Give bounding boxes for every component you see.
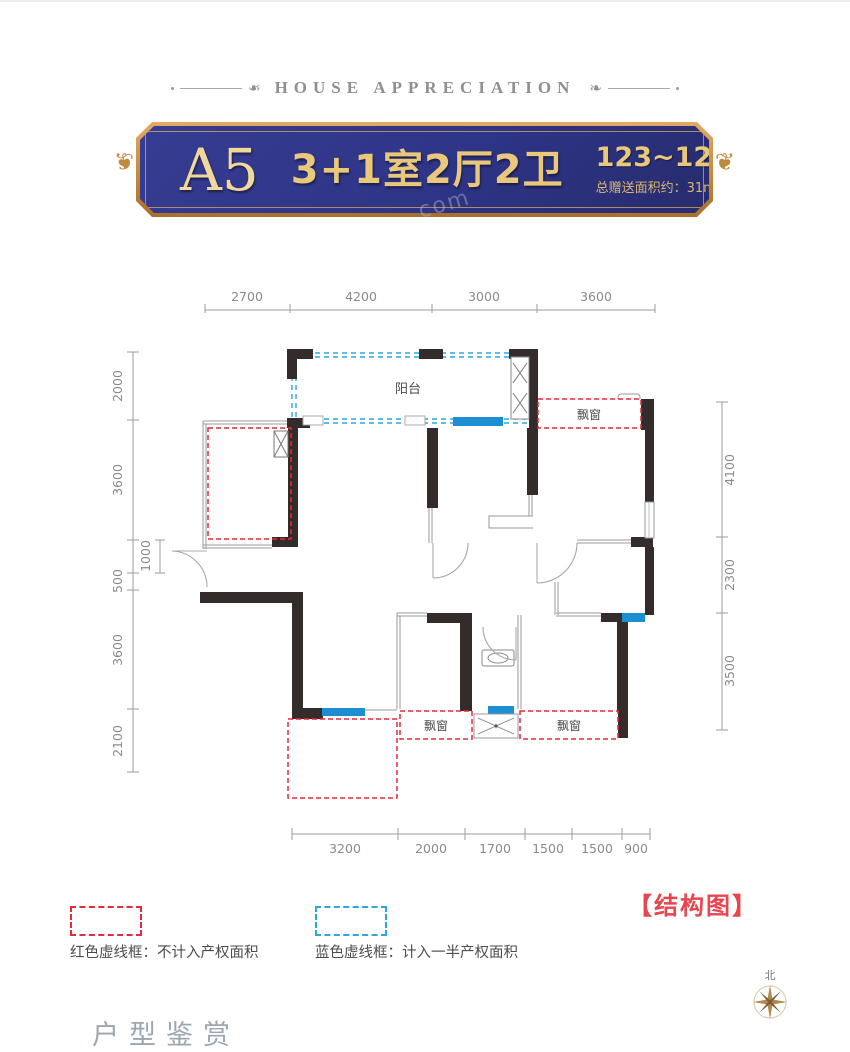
dim-bottom-6: 900 [624,841,648,856]
dim-right-2: 2300 [722,559,737,591]
balcony-label: 阳台 [395,382,421,397]
dim-left-5: 3600 [110,634,125,666]
dim-top-4: 3600 [580,289,612,304]
structure-diagram-title: 【结构图】 [628,886,758,921]
entry-door-arc [172,551,207,587]
bedroom-door-arc-2 [537,543,577,583]
dim-right-3: 3500 [722,655,737,687]
dim-right-1: 4100 [722,454,737,486]
red-area-bottom-room [288,719,397,798]
floorplan-page: { "header": { "title": "HOUSE APPRECIATI… [0,0,850,1029]
dim-left-6: 2100 [110,725,125,757]
dim-bottom-3: 1700 [479,841,511,856]
dim-left-4: 500 [110,569,125,593]
compass-north-label: 北 [765,969,776,982]
window-fixture-bottom [474,714,518,738]
dim-bottom-4: 1500 [532,841,564,856]
dim-left-1: 2000 [110,370,125,402]
dim-left-2: 3600 [110,464,125,496]
dim-top-3: 3000 [468,289,500,304]
bay-window-label-1: 飘窗 [577,408,601,422]
bay-window-label-2: 飘窗 [424,719,448,733]
dim-bottom-5: 1500 [581,841,613,856]
dim-left-3: 1000 [138,540,153,572]
legend-red-swatch [70,906,142,936]
compass-rose: 北 [753,969,787,1019]
dim-bottom-2: 2000 [415,841,447,856]
dim-bottom-1: 3200 [329,841,361,856]
corner-window-symbol [274,431,288,457]
floor-plan: 2700 4200 3000 3600 2000 3600 1000 500 3… [0,0,850,1029]
dim-top-2: 4200 [345,289,377,304]
bay-window-label-3: 飘窗 [557,719,581,733]
dimension-lines [127,304,728,840]
sink-fixture [482,650,514,666]
next-section-cut-text: 户型鉴赏 [92,1013,240,1052]
legend-blue-swatch [315,906,387,936]
bedroom-door-arc-1 [433,543,468,578]
thin-walls [203,421,631,710]
room-labels: 阳台 飘窗 飘窗 飘窗 [395,382,601,733]
legend-red-label: 红色虚线框：不计入产权面积 [70,941,259,962]
legend-blue-label: 蓝色虚线框：计入一半产权面积 [315,941,518,962]
dim-top-1: 2700 [231,289,263,304]
